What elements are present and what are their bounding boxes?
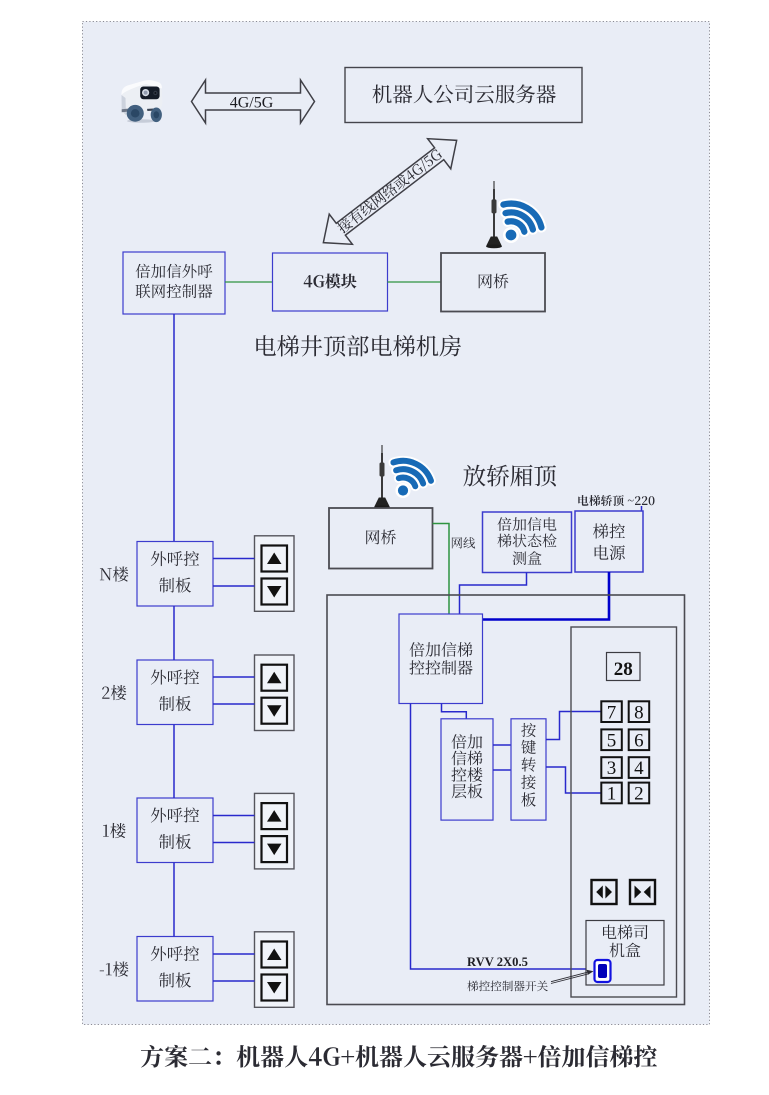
svg-text:28: 28 (614, 659, 633, 680)
svg-text:2: 2 (634, 784, 644, 805)
svg-text:RVV 2X0.5: RVV 2X0.5 (467, 955, 528, 969)
svg-text:4G/5G: 4G/5G (230, 95, 274, 112)
svg-text:7: 7 (607, 702, 617, 723)
svg-text:4: 4 (634, 758, 644, 779)
svg-text:5: 5 (607, 730, 617, 751)
svg-text:6: 6 (634, 730, 644, 751)
svg-text:8: 8 (634, 702, 644, 723)
svg-text:3: 3 (607, 758, 617, 779)
svg-text:1: 1 (607, 784, 617, 805)
